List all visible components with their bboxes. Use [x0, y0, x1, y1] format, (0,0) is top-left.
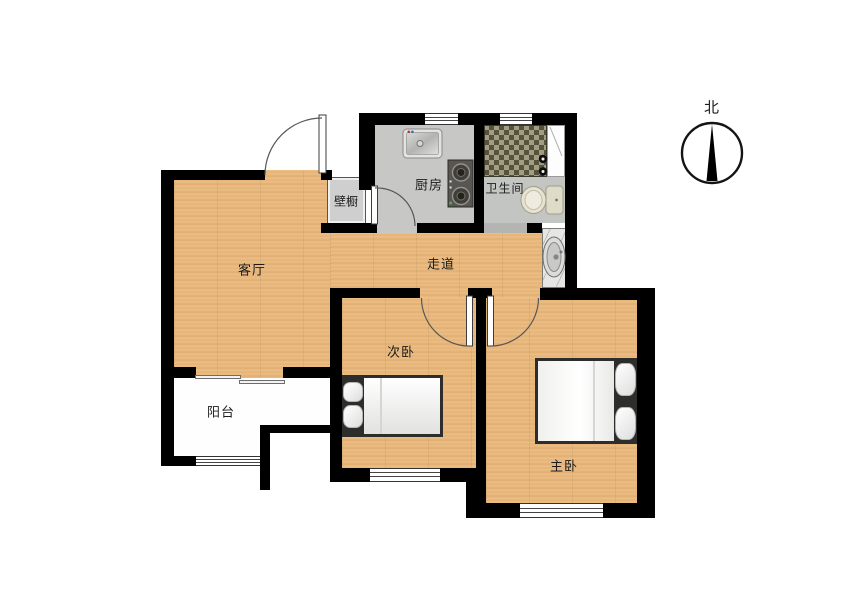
hallway-bottom-wall-left: [330, 288, 420, 298]
double-bed-mattress: [538, 361, 614, 441]
master-right-wall: [637, 288, 655, 518]
closet-label: 壁橱: [334, 193, 358, 210]
left-exterior-wall: [161, 170, 174, 466]
bathroom-bottom-stub: [527, 223, 542, 233]
kitchen-bathroom-divider: [474, 125, 484, 233]
single-bed-sheet-fold: [380, 378, 382, 434]
bathroom-right-wall: [565, 113, 577, 298]
living-room-label: 客厅: [238, 260, 266, 279]
hallway-label: 走道: [427, 254, 455, 273]
floor-plan: 客厅 厨房 卫生间 壁橱 走道 次卧 主卧 阳台 北: [0, 0, 842, 596]
sliding-door-panel: [195, 375, 241, 379]
balcony-divider-left: [161, 367, 196, 378]
balcony-inner-wall-horizontal: [260, 425, 332, 433]
bathroom-label: 卫生间: [485, 180, 524, 197]
closet-bottom-wall: [321, 223, 377, 233]
kitchen-bath-top-wall: [458, 113, 500, 125]
balcony-label: 阳台: [207, 402, 235, 421]
balcony-divider-right: [283, 367, 330, 378]
sliding-door-panel: [239, 380, 285, 384]
balcony-inner-wall-vertical: [260, 425, 270, 490]
balcony-floor-lower: [174, 425, 260, 456]
bathroom-window: [500, 113, 532, 125]
master-bedroom-label: 主卧: [550, 456, 578, 475]
bathroom-door-threshold: [484, 223, 527, 233]
second-bedroom-label: 次卧: [387, 342, 415, 361]
bedroom-door-stub: [468, 288, 492, 298]
kitchen-door-threshold: [377, 223, 417, 233]
entrance-door: [265, 115, 326, 175]
second-bedroom-bottom-wall-left: [330, 468, 370, 482]
double-bed-pillow: [615, 407, 636, 440]
balcony-floor: [174, 378, 330, 425]
entrance-wall-stub: [321, 170, 332, 180]
double-bed-sheet-fold: [593, 361, 595, 441]
compass-north-label: 北: [704, 97, 720, 118]
single-bed-mattress: [364, 378, 440, 434]
shower-screen: [547, 125, 565, 177]
single-bed-pillow: [343, 382, 363, 402]
living-room-top-wall: [161, 170, 265, 180]
single-bed-pillow: [343, 405, 363, 428]
balcony-window: [196, 456, 260, 466]
north-compass-icon: [682, 123, 742, 183]
kitchen-window: [425, 113, 458, 125]
master-bedroom-window: [520, 503, 603, 518]
second-bedroom-left-wall: [330, 288, 342, 482]
master-bottom-wall-left: [466, 503, 520, 518]
double-bed-pillow: [615, 363, 636, 396]
kitchen-label: 厨房: [415, 175, 443, 194]
kitchen-top-wall: [359, 113, 425, 125]
bedroom-divider-wall: [476, 298, 486, 470]
shower-mosaic-area: [484, 125, 547, 177]
second-bedroom-window: [370, 468, 440, 482]
balcony-bottom-wall: [161, 456, 196, 466]
